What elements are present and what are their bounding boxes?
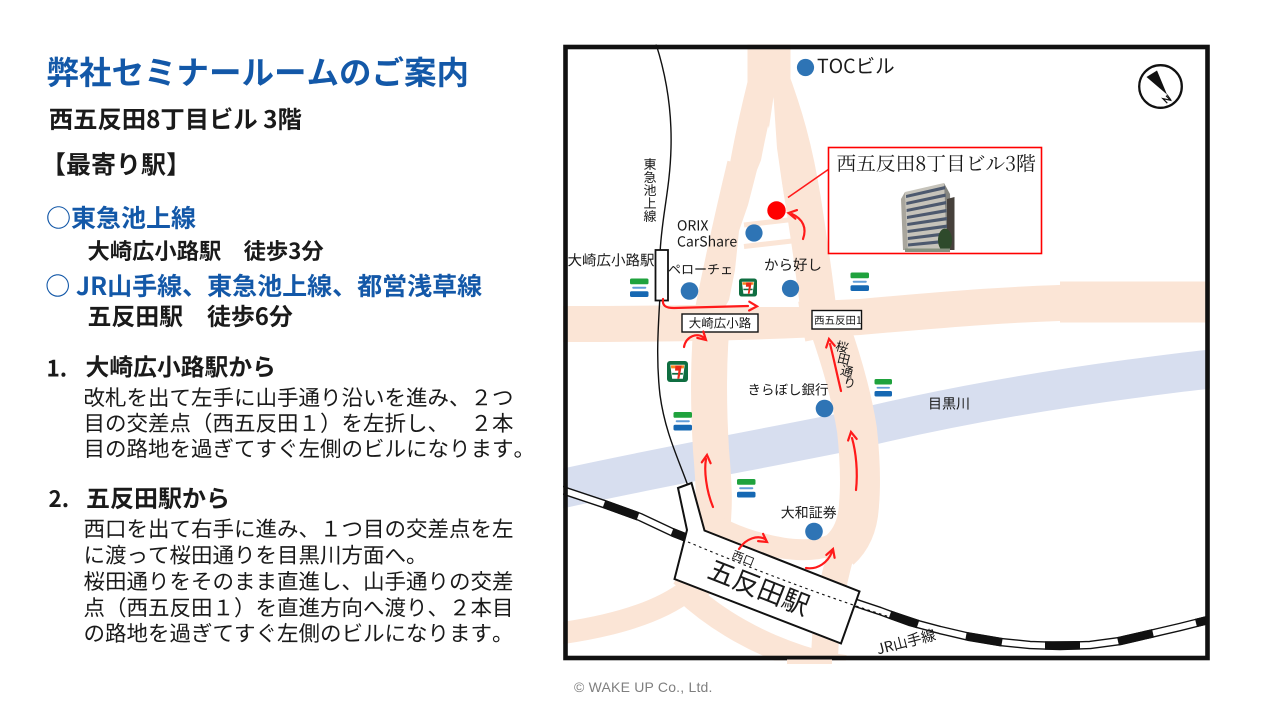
svg-text:© WAKE UP Co., Ltd.: © WAKE UP Co., Ltd. — [574, 679, 713, 695]
